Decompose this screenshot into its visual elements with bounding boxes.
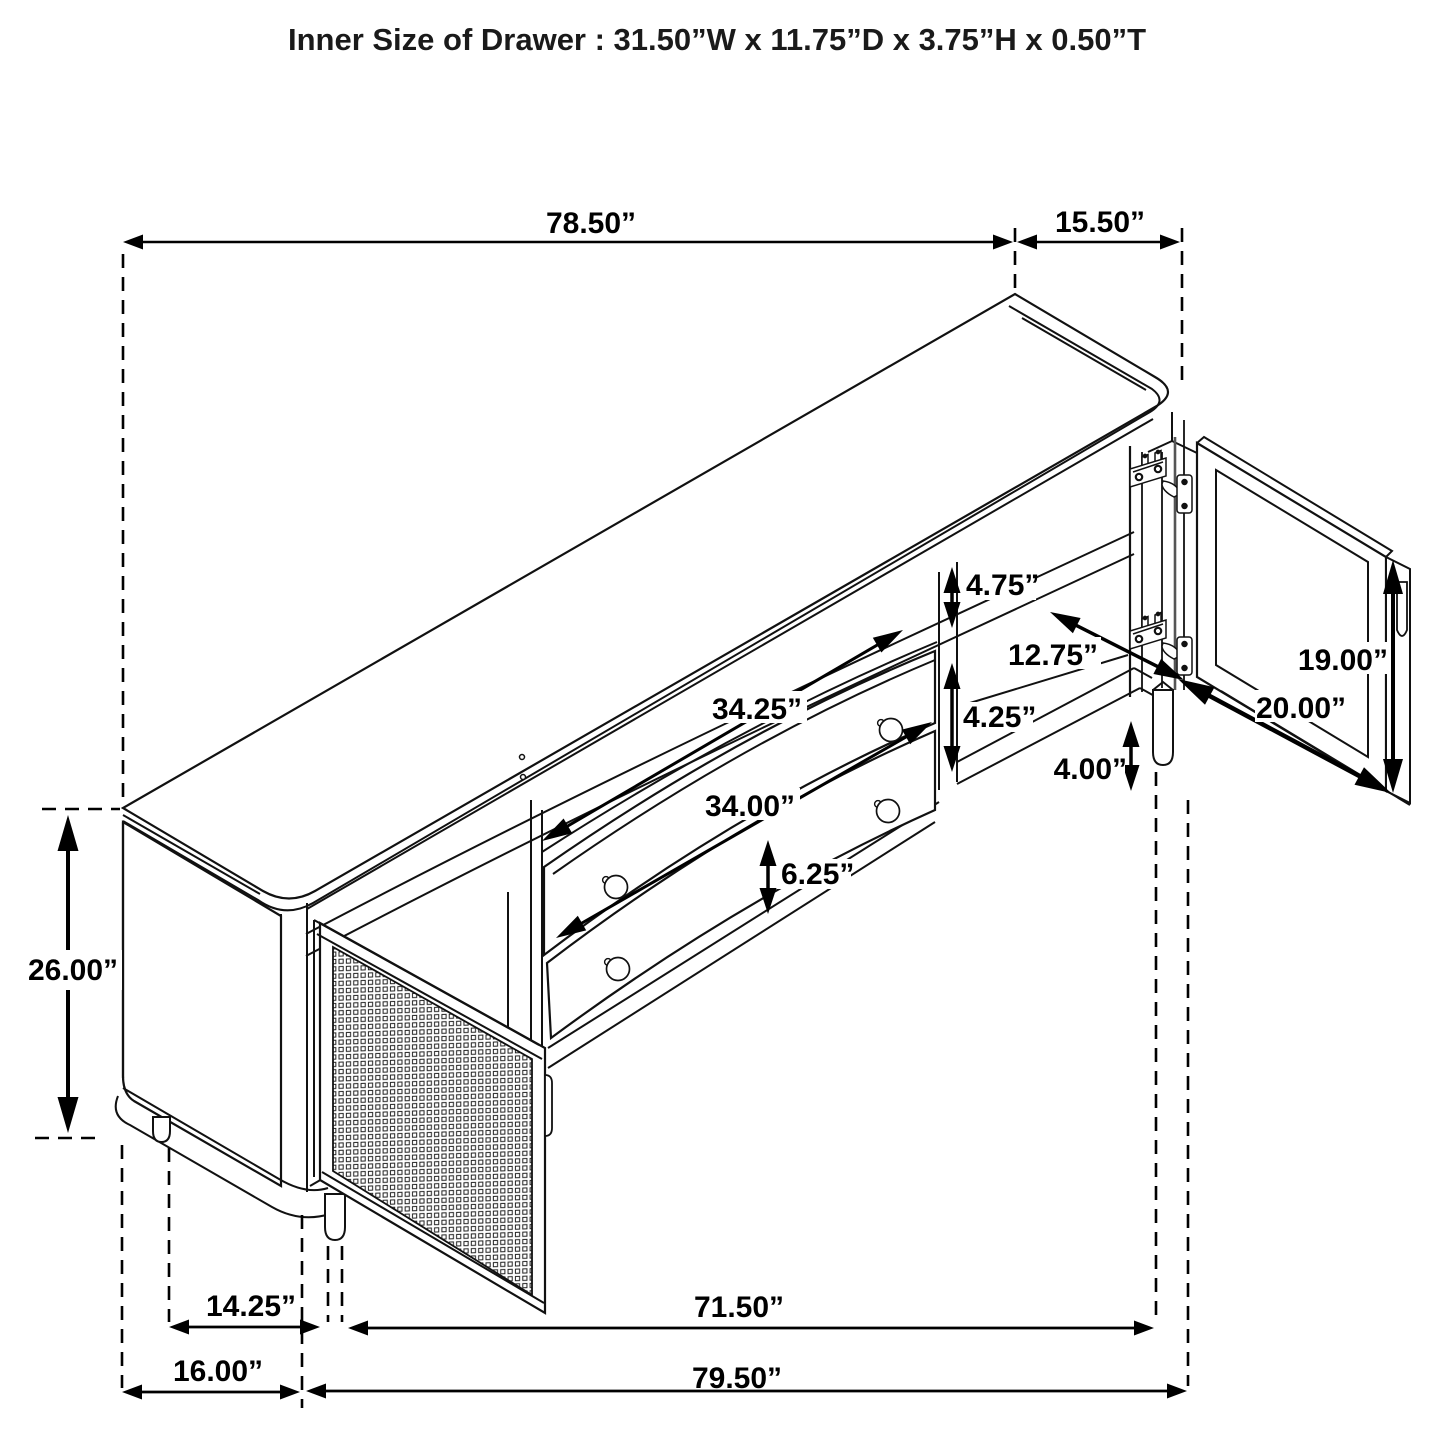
svg-text:16.00”: 16.00” xyxy=(173,1355,263,1388)
svg-text:4.75”: 4.75” xyxy=(966,569,1039,602)
svg-text:14.25”: 14.25” xyxy=(206,1290,296,1323)
svg-text:20.00”: 20.00” xyxy=(1256,692,1346,725)
svg-text:4.25”: 4.25” xyxy=(963,701,1036,734)
svg-text:4.00”: 4.00” xyxy=(1054,753,1127,786)
svg-text:12.75”: 12.75” xyxy=(1008,639,1098,672)
svg-text:79.50”: 79.50” xyxy=(692,1362,782,1395)
svg-text:71.50”: 71.50” xyxy=(694,1291,784,1324)
svg-text:26.00”: 26.00” xyxy=(28,954,118,987)
svg-text:6.25”: 6.25” xyxy=(781,858,854,891)
svg-text:Inner Size of Drawer : 31.50”W: Inner Size of Drawer : 31.50”W x 11.75”D… xyxy=(288,22,1146,57)
svg-text:15.50”: 15.50” xyxy=(1055,206,1145,239)
svg-text:78.50”: 78.50” xyxy=(546,207,636,240)
svg-text:34.25”: 34.25” xyxy=(712,693,802,726)
svg-text:19.00”: 19.00” xyxy=(1298,644,1388,677)
svg-text:34.00”: 34.00” xyxy=(705,790,795,823)
